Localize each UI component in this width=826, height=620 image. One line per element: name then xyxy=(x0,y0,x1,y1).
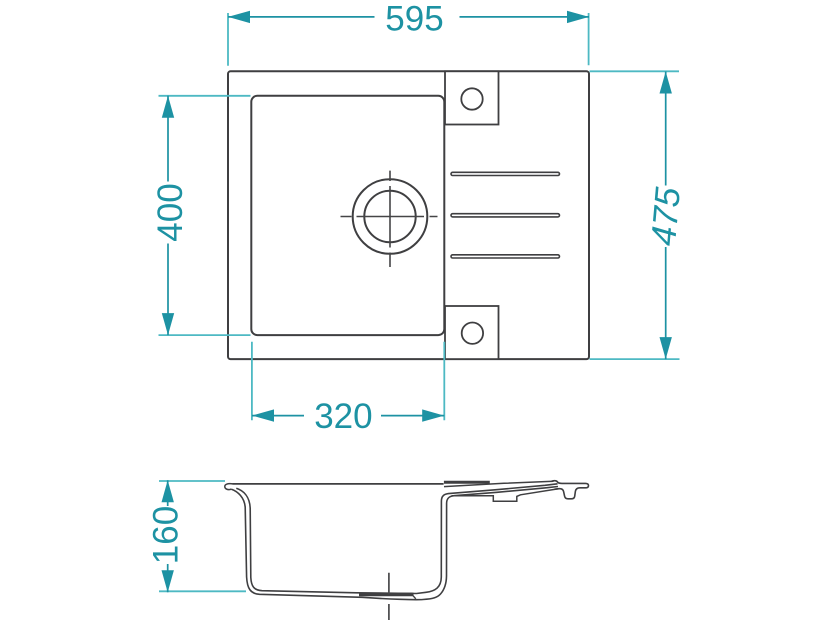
svg-text:595: 595 xyxy=(385,0,443,39)
svg-text:475: 475 xyxy=(644,185,688,247)
svg-text:400: 400 xyxy=(151,183,190,241)
svg-text:320: 320 xyxy=(314,397,372,436)
svg-text:160: 160 xyxy=(147,506,186,564)
